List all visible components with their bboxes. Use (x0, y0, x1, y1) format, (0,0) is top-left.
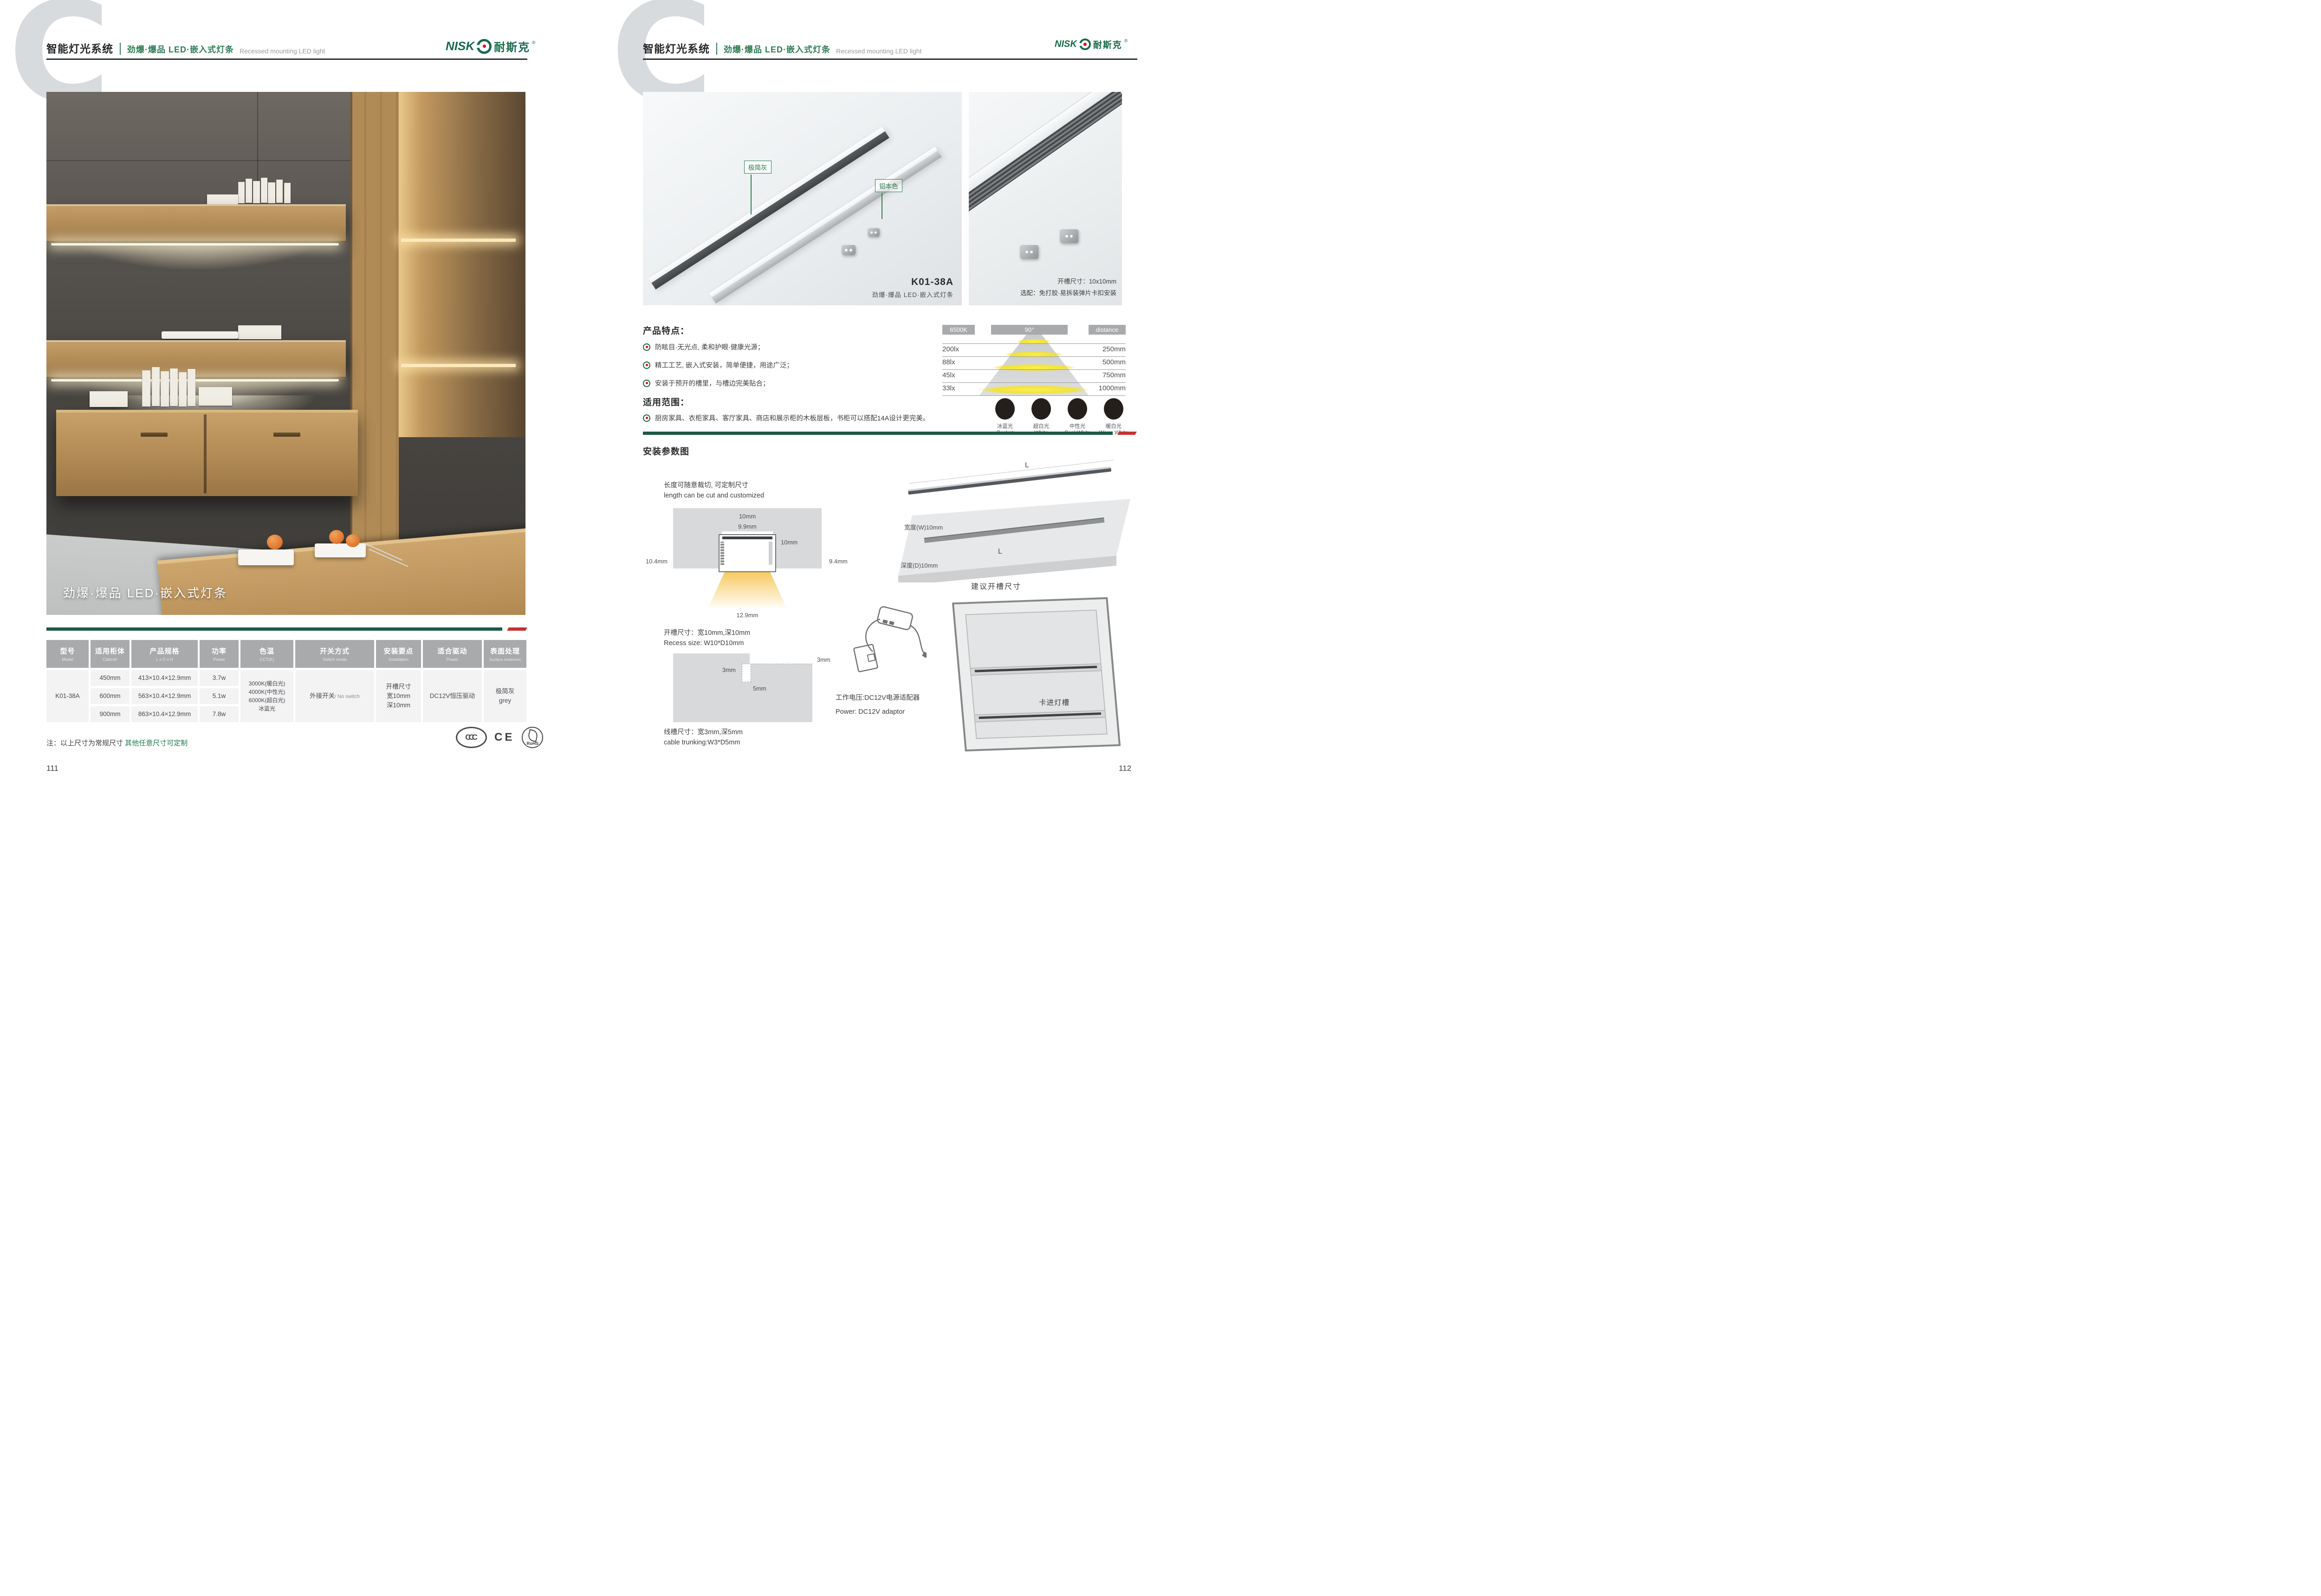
board-isometric (898, 499, 1130, 582)
dim-trunk-left: 3mm (722, 666, 736, 673)
wall-shelf-upper (46, 204, 346, 244)
wall-shelf-lower (46, 340, 346, 380)
chart-gridline (942, 369, 1126, 370)
feature-item: 防眩目·无光点, 柔和护眼·健康光源； (643, 342, 764, 352)
brand-latin: NISK (1055, 39, 1077, 50)
col-header: 安装要点 (383, 646, 413, 656)
rohs-cert-icon: RoHS (522, 727, 543, 748)
dim-inner-width: 9.9mm (733, 523, 761, 530)
cell-model: K01-38A (46, 670, 89, 722)
footnote-green: 其他任意尺寸可定制 (125, 739, 188, 747)
bullet-icon (643, 343, 650, 351)
col-surface: 表面处理Surface treatment 极简灰grey (484, 640, 526, 722)
led-strip-light (51, 243, 338, 246)
optional-clip-line: 选配：免打胶·易拆装弹片卡扣安装 (1020, 288, 1116, 299)
cable-trunking-diagram (673, 653, 812, 722)
divider-green-right (643, 432, 1113, 435)
header-rule-left (46, 58, 527, 60)
chart-distance-header: distance (1089, 325, 1126, 335)
feature-item: 精工工艺, 嵌入式安装，简单便捷，用途广泛； (643, 360, 793, 370)
plate (238, 549, 294, 565)
dim-trunk-depth: 5mm (753, 685, 766, 692)
plate (315, 543, 366, 557)
cell-spec: 413×10.4×12.9mm (131, 670, 198, 686)
lux-label: 45lx (942, 371, 955, 379)
hero-photo: 劲爆·爆品 LED·嵌入式灯条 (46, 92, 525, 615)
header-series-english: Recessed mounting LED light (836, 47, 921, 56)
spec-table: 型号Model K01-38A 适用柜体Cabinet 450mm 600mm … (46, 640, 527, 722)
dim-groove-length: L (998, 548, 1002, 556)
col-header: 适合驱动 (437, 646, 467, 656)
ccc-cert-icon: CCC (456, 727, 487, 748)
divider-red-right (1117, 432, 1137, 435)
label-leader-line (882, 193, 882, 219)
dim-groove-width: 宽度(W)10mm (904, 523, 943, 531)
book (142, 370, 150, 407)
col-cabinet: 适用柜体Cabinet 450mm 600mm 900mm (91, 640, 130, 722)
mounting-clip (842, 245, 856, 255)
heatsink-fins (969, 92, 1122, 229)
book (276, 180, 282, 203)
cross-section-diagram: 10mm 9.9mm 10mm (673, 508, 822, 569)
book (188, 369, 195, 406)
lux-label: 33lx (942, 384, 955, 392)
features-title: 产品特点： (643, 324, 689, 336)
dim-strip-length: L (1025, 461, 1029, 470)
led-glow (401, 239, 516, 242)
photo-overlay-title: 劲爆·爆品 LED·嵌入式灯条 (63, 584, 227, 601)
cell-cabinet: 450mm (91, 670, 130, 686)
recess-size-cn: 开槽尺寸：宽10mm,深10mm (664, 627, 750, 637)
divider-green-left (46, 627, 502, 631)
scope-item: 厨房家具、衣柜家具、客厅家具、商店和展示柜的木板层板，书柜可以搭配14A设计更完… (643, 413, 1107, 423)
divider-red-left (507, 627, 527, 631)
header-separator (716, 43, 717, 55)
col-spec: 产品规格L x D x H 413×10.4×12.9mm 563×10.4×1… (131, 640, 198, 722)
trunk-step (750, 653, 812, 664)
clip-into-slot-label: 卡进灯槽 (1039, 697, 1070, 707)
dim-left-height: 10.4mm (637, 558, 668, 565)
header-system-title: 智能灯光系统 (46, 40, 113, 56)
book-stack (90, 391, 128, 407)
drawer-handle (141, 433, 168, 437)
mounting-clip (1020, 245, 1038, 259)
col-power: 功率Power 3.7w 5.1w 7.8w (200, 640, 239, 722)
col-header-en: Cabinet (103, 657, 117, 662)
lux-label: 200lx (942, 345, 959, 353)
product-photo-strips: 极简灰 铝本色 K01-38A 劲爆·爆品 LED·嵌入式灯条 (643, 92, 962, 305)
col-header: 功率 (212, 646, 227, 656)
light-pool (978, 385, 1089, 394)
dim-depth: 10mm (781, 539, 797, 546)
col-driver: 适合驱动Power DC12V恒压驱动 (423, 640, 482, 722)
book (152, 367, 159, 406)
photo1-caption: K01-38A 劲爆·爆品 LED·嵌入式灯条 (872, 277, 953, 299)
cell-surface: 极简灰grey (484, 670, 526, 722)
header-separator (120, 43, 121, 55)
bullet-icon (643, 362, 650, 369)
cell-power: 7.8w (200, 706, 239, 722)
header-series-english: Recessed mounting LED light (240, 47, 325, 56)
distance-label: 500mm (1102, 358, 1126, 366)
profile-closeup (969, 92, 1122, 229)
col-header-en: Installation (389, 657, 408, 662)
mounting-clip (868, 228, 880, 237)
header-series-title: 劲爆·爆品 LED·嵌入式灯条 (127, 43, 234, 56)
header-system-title: 智能灯光系统 (643, 40, 710, 56)
strip-isometric (908, 466, 1111, 495)
col-header-en: Power (447, 657, 459, 662)
installation-title: 安装参数图 (643, 445, 689, 457)
trunking-en: cable trunking:W3*D5mm (664, 739, 740, 746)
col-header-en: Switch mode (323, 657, 347, 662)
brand-logo: NISK 耐斯克 ® (446, 38, 536, 54)
col-header-en: L x D x H (156, 657, 173, 662)
book (246, 179, 252, 203)
dim-top-width: 10mm (733, 513, 761, 520)
col-header: 开关方式 (320, 646, 350, 656)
page-number-right: 112 (1119, 764, 1131, 773)
cell-power: 3.7w (200, 670, 239, 686)
product-photo-profile: 开槽尺寸：10x10mm 选配：免打胶·易拆装弹片卡扣安装 (969, 92, 1122, 305)
col-header: 产品规格 (149, 646, 179, 656)
bullet-icon (643, 380, 650, 387)
col-cct: 色温CCT(K) 3000K(暖白光)4000K(中性光)6000K(超白光)冰… (240, 640, 293, 722)
book (161, 371, 169, 407)
recess-size-line: 开槽尺寸：10x10mm (1020, 276, 1116, 287)
leaf-icon (527, 729, 539, 742)
chart-cct-header: 6500K (942, 325, 975, 335)
drawer-gap (204, 414, 207, 493)
model-number: K01-38A (872, 277, 953, 288)
tray (162, 331, 238, 339)
col-header: 表面处理 (490, 646, 520, 656)
peach (267, 535, 283, 549)
header-rule-right (643, 58, 1137, 60)
book-stack (199, 387, 232, 406)
footnote: 注：以上尺寸为常规尺寸 其他任意尺寸可定制 (46, 738, 188, 748)
book (268, 182, 275, 203)
model-subtitle: 劲爆·爆品 LED·嵌入式灯条 (872, 290, 953, 299)
book (179, 372, 187, 407)
certification-icons: CCC CE RoHS (456, 727, 543, 748)
col-switch: 开关方式Switch mode 外接开关/ No switch (295, 640, 374, 722)
brand-registered-mark: ® (532, 40, 535, 45)
distance-label: 750mm (1102, 371, 1126, 379)
mounting-clip (1060, 229, 1078, 243)
voltage-en: Power: DC12V adaptor (836, 708, 905, 716)
brand-registered-mark: ® (1124, 39, 1128, 44)
lit-cabinet-interior (399, 92, 525, 437)
cell-cct: 3000K(暖白光)4000K(中性光)6000K(超白光)冰蓝光 (240, 670, 293, 722)
cell-switch: 外接开关/ No switch (295, 670, 374, 722)
distance-label: 250mm (1102, 345, 1126, 353)
book-stack (238, 325, 281, 339)
bullet-icon (643, 414, 650, 422)
chart-gridline (942, 382, 1126, 383)
page-number-left: 111 (46, 764, 58, 773)
cell-install: 开槽尺寸宽10mm深10mm (376, 670, 421, 722)
col-header-en: CCT(K) (260, 657, 274, 662)
suggest-groove-caption: 建议开槽尺寸 (971, 580, 1021, 591)
col-header: 适用柜体 (95, 646, 125, 656)
dim-right-height: 9.4mm (829, 558, 848, 565)
brand-o-mark-icon (1079, 39, 1091, 50)
cell-spec: 563×10.4×12.9mm (131, 688, 198, 704)
light-pool (992, 364, 1076, 371)
trunking-cn: 线槽尺寸：宽3mm,深5mm (664, 727, 743, 737)
feature-item: 安装于预开的槽里，与槽边完美贴合； (643, 378, 770, 388)
dim-trunk-right: 3mm (817, 656, 830, 663)
led-glow (401, 364, 516, 367)
drawer-handle (273, 433, 300, 437)
cell-cabinet: 600mm (91, 688, 130, 704)
finish-label-grey: 极简灰 (744, 161, 772, 174)
sideboard (56, 410, 358, 496)
header-series-title: 劲爆·爆品 LED·嵌入式灯条 (724, 43, 830, 56)
voltage-cn: 工作电压:DC12V电源适配器 (836, 692, 920, 702)
col-header: 型号 (60, 646, 75, 656)
peach (346, 534, 360, 547)
catalog-spread: C 智能灯光系统 劲爆·爆品 LED·嵌入式灯条 Recessed mounti… (0, 0, 1168, 798)
label-leader-line (751, 174, 752, 214)
peach (329, 530, 344, 544)
cell-spec: 863×10.4×12.9mm (131, 706, 198, 722)
brand-chinese: 耐斯克 (494, 38, 530, 54)
book (284, 183, 291, 203)
col-header-en: Model (62, 657, 73, 662)
chart-angle-header: 90° (991, 325, 1068, 335)
finish-label-aluminum: 铝本色 (875, 179, 902, 192)
chart-gridline (942, 395, 1126, 396)
brand-logo: NISK 耐斯克 ® (1055, 38, 1128, 51)
book (261, 178, 267, 203)
cut-length-cn: 长度可随意裁切, 可定制尺寸 (664, 480, 748, 490)
photo2-caption: 开槽尺寸：10x10mm 选配：免打胶·易拆装弹片卡扣安装 (1020, 276, 1116, 299)
cut-length-en: length can be cut and customized (664, 492, 764, 499)
chart-gridline (942, 343, 1126, 344)
brand-chinese: 耐斯克 (1093, 38, 1122, 51)
cabinet-isometric (952, 597, 1121, 751)
brand-o-mark-icon (477, 39, 492, 54)
chart-gridline (942, 356, 1126, 357)
cell-power: 5.1w (200, 688, 239, 704)
trunk-slot (742, 664, 751, 682)
footnote-black: 注：以上尺寸为常规尺寸 (46, 739, 125, 747)
dim-groove-depth: 深度(D)10mm (901, 561, 938, 569)
scope-title: 适用范围： (643, 395, 689, 408)
distance-label: 1000mm (1099, 384, 1126, 392)
light-beam (708, 572, 787, 608)
col-model: 型号Model K01-38A (46, 640, 89, 722)
dim-bottom-width: 12.9mm (731, 612, 764, 619)
page-header-right: 智能灯光系统 劲爆·爆品 LED·嵌入式灯条 Recessed mounting… (643, 36, 921, 56)
ce-cert-icon: CE (494, 731, 514, 744)
book (238, 182, 245, 203)
profile-section (719, 534, 776, 572)
recess-size-en: Recess size: W10*D10mm (664, 640, 744, 647)
book-stack (207, 194, 238, 206)
col-header-en: Surface treatment (489, 657, 521, 662)
lux-label: 88lx (942, 358, 955, 366)
col-header: 色温 (259, 646, 274, 656)
page-header-left: 智能灯光系统 劲爆·爆品 LED·嵌入式灯条 Recessed mounting… (46, 36, 325, 56)
col-header-en: Power (213, 657, 225, 662)
book (170, 368, 177, 406)
book (253, 181, 260, 203)
cell-cabinet: 900mm (91, 706, 130, 722)
power-adapter-icon (852, 603, 927, 687)
cell-driver: DC12V恒压驱动 (423, 670, 482, 722)
col-install: 安装要点Installation 开槽尺寸宽10mm深10mm (376, 640, 421, 722)
brand-latin: NISK (446, 39, 474, 53)
